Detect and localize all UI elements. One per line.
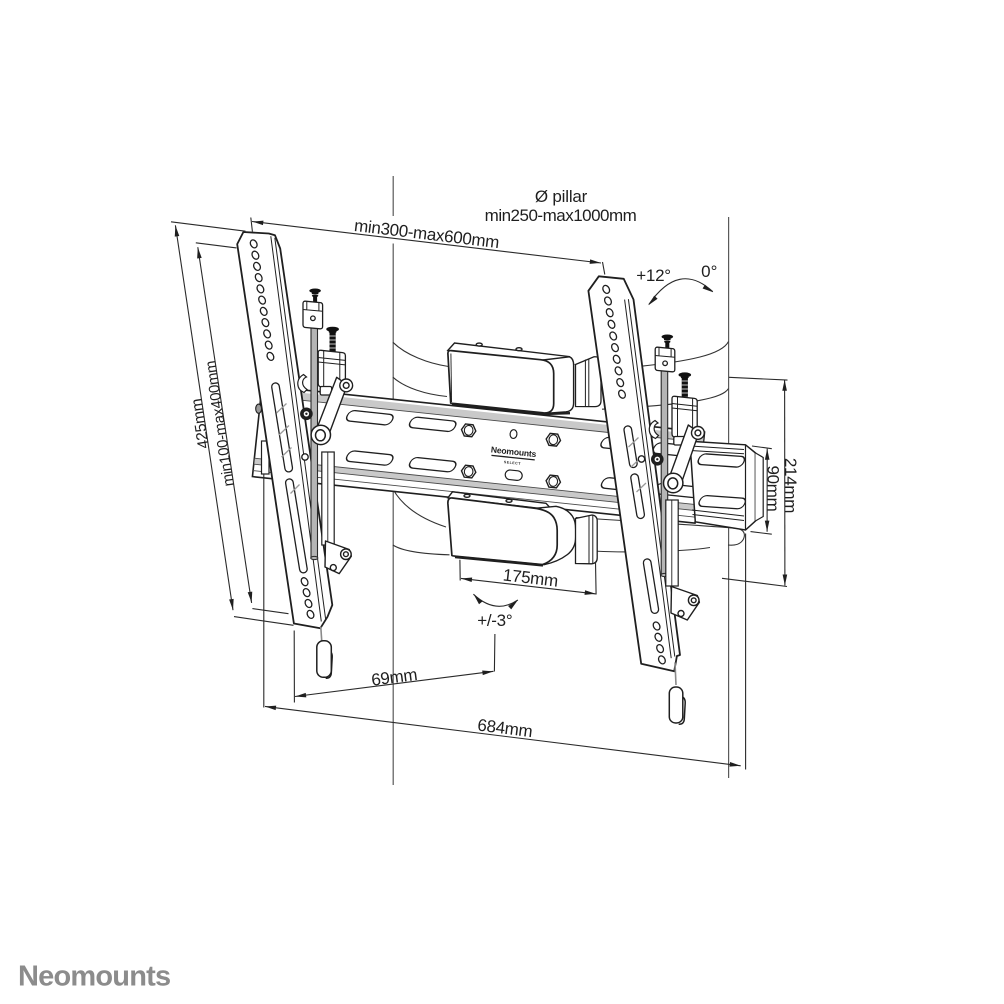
svg-text:214mm: 214mm — [781, 458, 800, 513]
svg-text:684mm: 684mm — [476, 716, 533, 742]
svg-text:+/-3°: +/-3° — [477, 611, 512, 630]
svg-text:Ø pillar: Ø pillar — [535, 187, 588, 206]
svg-text:69mm: 69mm — [370, 665, 418, 690]
svg-text:min250-max1000mm: min250-max1000mm — [485, 206, 637, 225]
svg-text:min300-max600mm: min300-max600mm — [353, 216, 500, 252]
svg-text:90mm: 90mm — [763, 465, 782, 511]
svg-text:175mm: 175mm — [502, 565, 559, 590]
svg-text:0°: 0° — [701, 262, 717, 281]
svg-text:Neomounts: Neomounts — [18, 961, 170, 993]
svg-text:+12°: +12° — [636, 266, 670, 285]
